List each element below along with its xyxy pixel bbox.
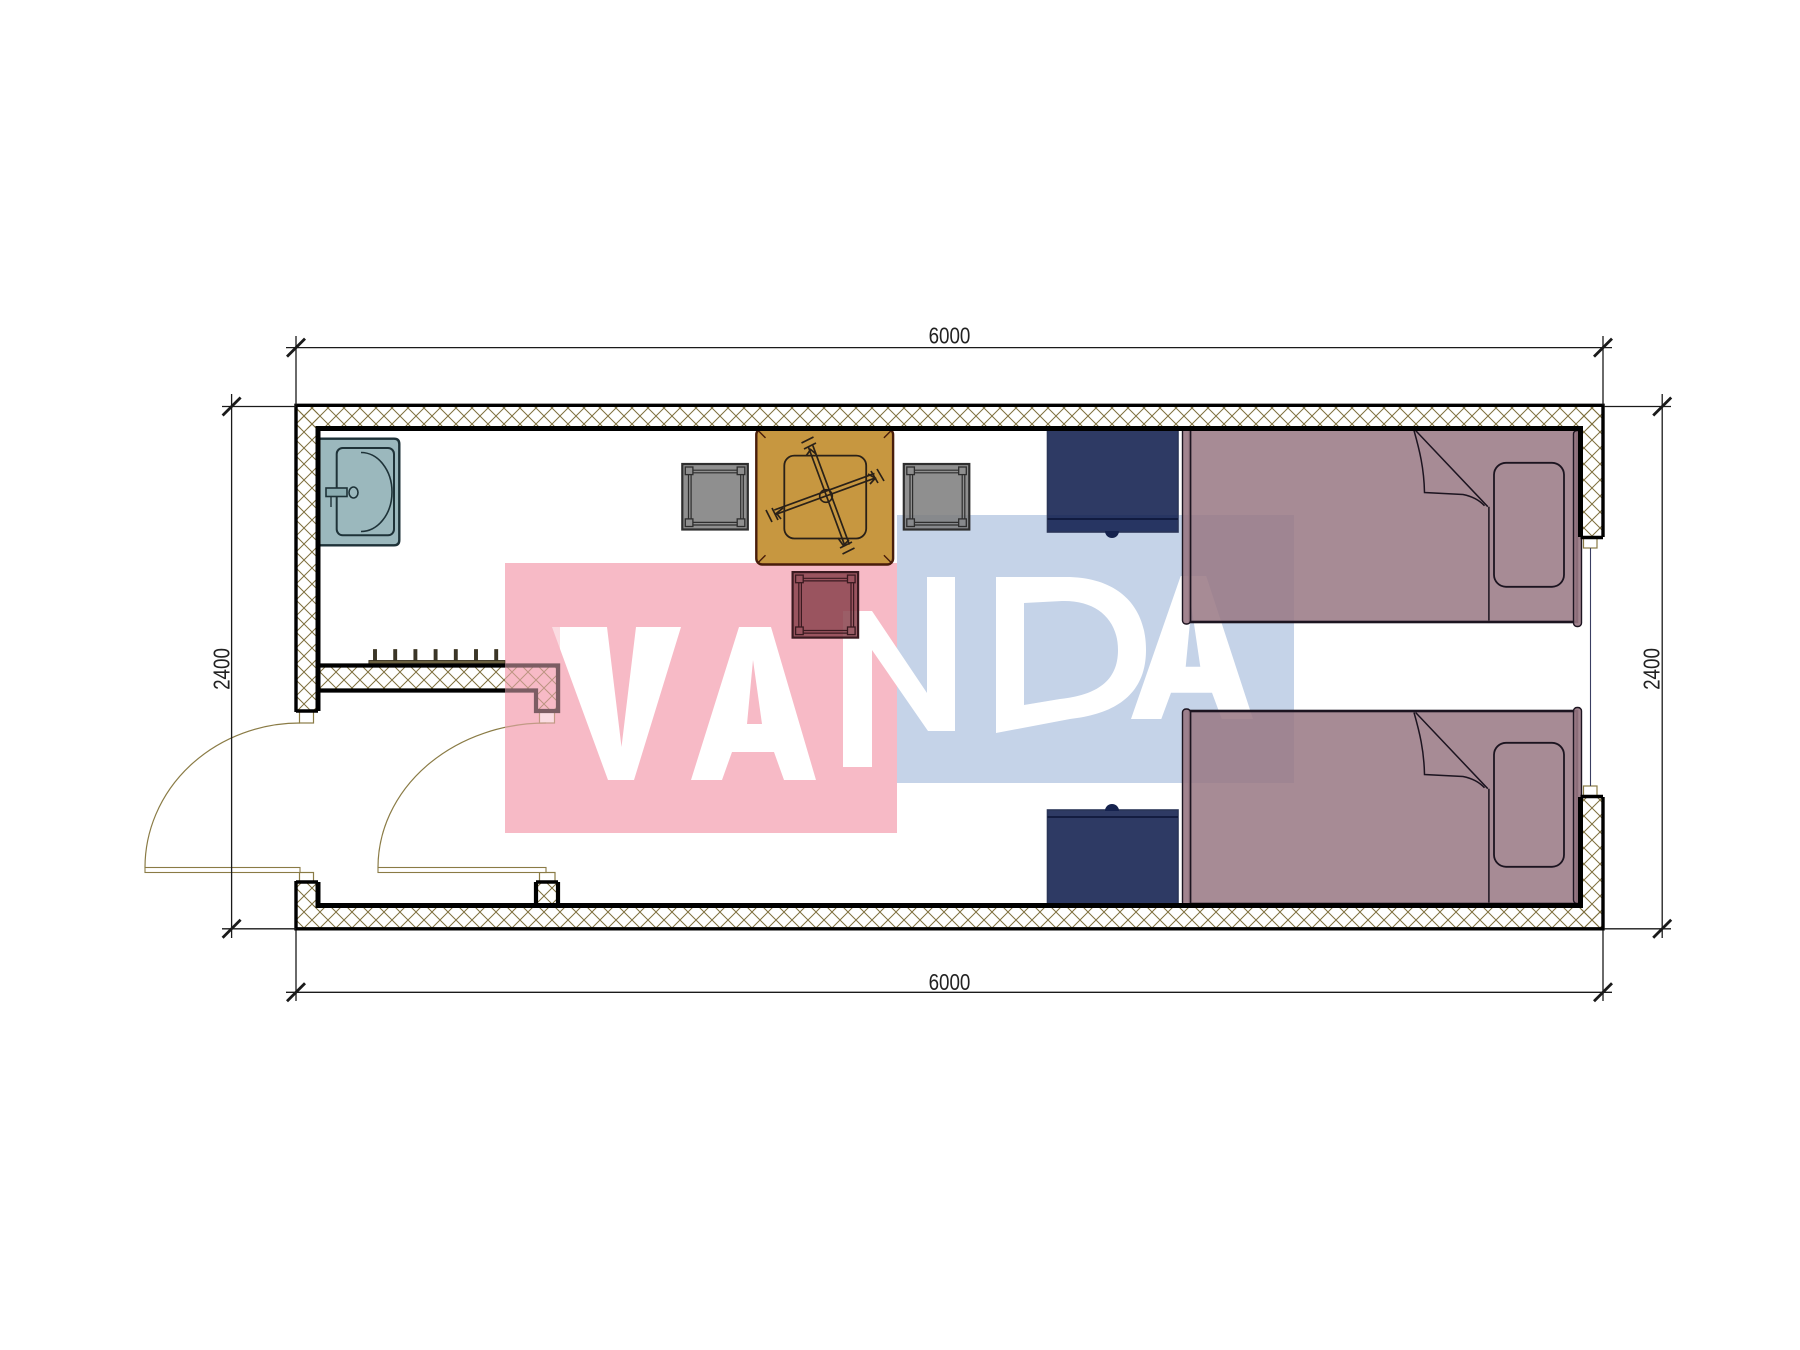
svg-text:6000: 6000 <box>929 323 971 350</box>
svg-text:2400: 2400 <box>1639 648 1666 690</box>
svg-text:2400: 2400 <box>209 648 236 690</box>
svg-text:6000: 6000 <box>929 969 971 996</box>
